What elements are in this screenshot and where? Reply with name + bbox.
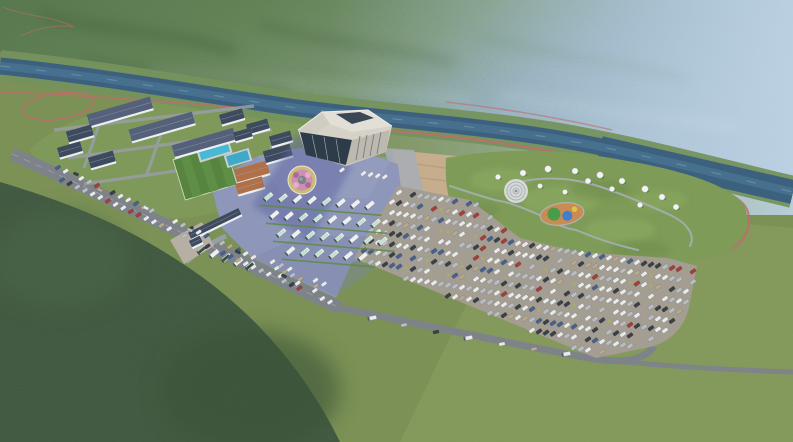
parking-bush [538,309,541,312]
aerial-site-rendering [0,0,793,442]
parking-bush [545,268,548,271]
parking-bush [447,273,450,276]
dome-tent [538,184,543,189]
parking-bush [440,230,443,233]
dome-tent [673,204,679,210]
parking-bush [405,266,408,269]
dome-tent [637,202,642,207]
parking-bush [608,320,611,323]
parking-bush [440,208,443,211]
dome-tent [597,172,603,178]
dome-tent [609,186,614,191]
dome-tent [520,170,526,176]
flower-bed [288,166,316,194]
dome-tent [572,168,578,174]
parking-bush [447,231,450,234]
dome-tent [585,178,591,184]
parking-bush [363,260,366,263]
dome-tent [545,166,551,172]
parking-bush [426,259,429,262]
dome-tent [563,190,568,195]
parking-bush [573,283,576,286]
dome-tent [642,186,648,192]
parking-bush [475,235,478,238]
parking-bush [650,274,653,277]
dome-tent [619,178,625,184]
spiral-plaza [504,179,528,203]
parking-bush [573,304,576,307]
dome-tent [659,194,665,200]
parking-bush [650,284,653,287]
dome-tent [495,174,500,179]
scene-canvas [0,0,793,442]
parking-bush [482,257,485,260]
parking-bush [461,265,464,268]
parking-bush [629,281,632,284]
